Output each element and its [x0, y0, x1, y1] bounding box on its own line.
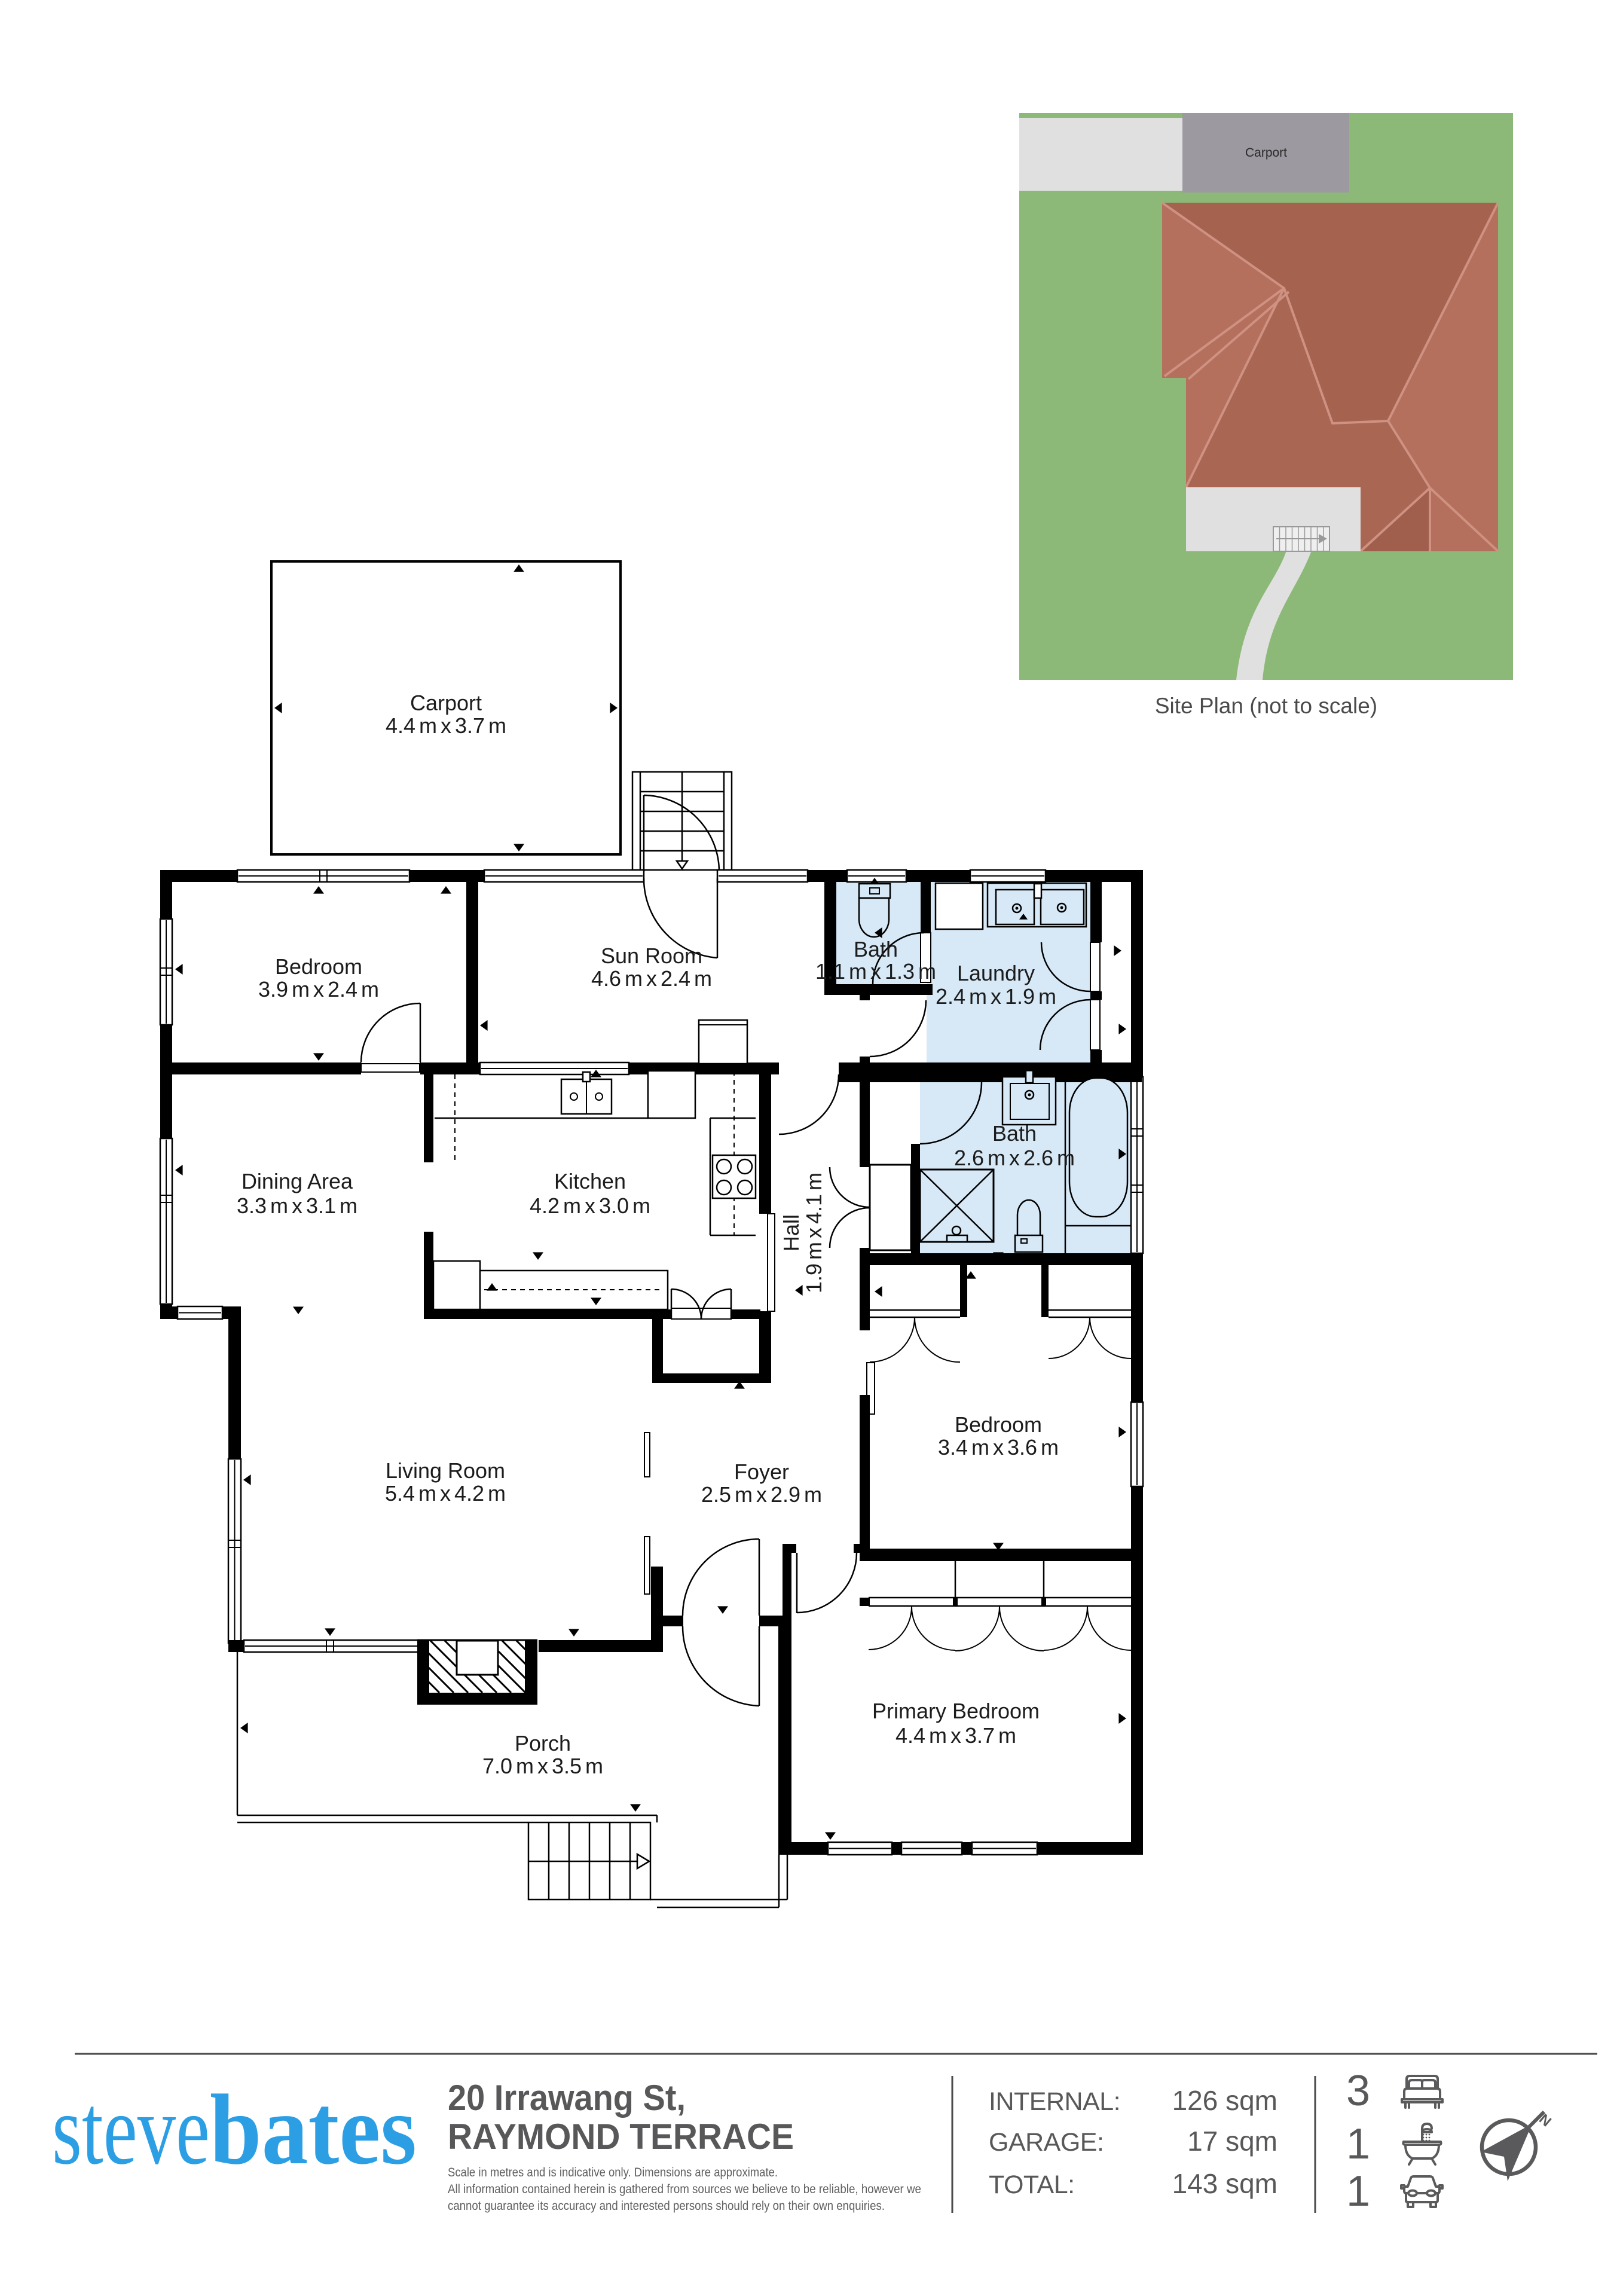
svg-text:Porch: Porch	[515, 1731, 571, 1755]
svg-text:4.6 m x 2.4 m: 4.6 m x 2.4 m	[591, 966, 712, 991]
svg-text:7.0 m x 3.5 m: 7.0 m x 3.5 m	[482, 1754, 603, 1778]
svg-text:143 sqm: 143 sqm	[1172, 2168, 1277, 2199]
svg-text:1.1 m x 1.3 m: 1.1 m x 1.3 m	[815, 959, 936, 984]
svg-text:17 sqm: 17 sqm	[1187, 2126, 1277, 2157]
svg-text:All information contained here: All information contained herein is gath…	[448, 2182, 921, 2196]
svg-text:Living Room: Living Room	[386, 1458, 505, 1483]
svg-text:2.6 m x 2.6 m: 2.6 m x 2.6 m	[954, 1146, 1075, 1170]
svg-text:Laundry: Laundry	[957, 961, 1035, 985]
svg-text:Foyer: Foyer	[734, 1460, 789, 1484]
svg-text:TOTAL:: TOTAL:	[989, 2170, 1075, 2199]
svg-text:steve: steve	[52, 2074, 210, 2185]
svg-text:INTERNAL:: INTERNAL:	[989, 2087, 1120, 2116]
svg-text:Carport: Carport	[1245, 146, 1287, 160]
svg-text:Kitchen: Kitchen	[554, 1169, 626, 1193]
svg-text:Bedroom: Bedroom	[955, 1412, 1042, 1437]
svg-text:1.9 m x 4.1 m: 1.9 m x 4.1 m	[802, 1173, 826, 1293]
svg-text:GARAGE:: GARAGE:	[989, 2128, 1104, 2157]
svg-text:Carport: Carport	[410, 691, 482, 715]
svg-text:Bedroom: Bedroom	[275, 954, 362, 979]
svg-text:1: 1	[1346, 2120, 1370, 2168]
svg-text:RAYMOND TERRACE: RAYMOND TERRACE	[448, 2117, 794, 2157]
svg-text:3.9 m x 2.4 m: 3.9 m x 2.4 m	[258, 977, 379, 1002]
svg-text:2.5 m x 2.9 m: 2.5 m x 2.9 m	[701, 1482, 822, 1507]
svg-text:4.2 m x 3.0 m: 4.2 m x 3.0 m	[530, 1193, 650, 1218]
svg-text:20 Irrawang St,: 20 Irrawang St,	[448, 2078, 686, 2118]
svg-text:4.4 m x 3.7 m: 4.4 m x 3.7 m	[895, 1723, 1016, 1748]
svg-text:126 sqm: 126 sqm	[1172, 2085, 1277, 2116]
svg-text:3.4 m x 3.6 m: 3.4 m x 3.6 m	[938, 1435, 1059, 1460]
svg-text:Scale in metres and is indicat: Scale in metres and is indicative only. …	[448, 2166, 778, 2179]
svg-text:cannot guarantee its accuracy: cannot guarantee its accuracy and intere…	[448, 2199, 885, 2213]
svg-text:Primary Bedroom: Primary Bedroom	[872, 1699, 1040, 1723]
svg-text:Dining Area: Dining Area	[242, 1169, 353, 1193]
svg-text:Bath: Bath	[992, 1121, 1037, 1146]
svg-text:Sun Room: Sun Room	[601, 944, 702, 968]
svg-text:5.4 m x 4.2 m: 5.4 m x 4.2 m	[385, 1481, 506, 1506]
svg-text:3.3 m x 3.1 m: 3.3 m x 3.1 m	[237, 1193, 357, 1218]
svg-text:2.4 m x 1.9 m: 2.4 m x 1.9 m	[936, 984, 1056, 1009]
svg-text:Bath: Bath	[854, 937, 898, 961]
svg-text:Hall: Hall	[779, 1214, 803, 1251]
svg-text:Site Plan (not to scale): Site Plan (not to scale)	[1155, 694, 1377, 718]
svg-text:4.4 m x 3.7 m: 4.4 m x 3.7 m	[386, 713, 506, 738]
svg-text:1: 1	[1346, 2167, 1370, 2215]
svg-text:3: 3	[1346, 2067, 1370, 2115]
svg-text:bates: bates	[210, 2074, 417, 2185]
